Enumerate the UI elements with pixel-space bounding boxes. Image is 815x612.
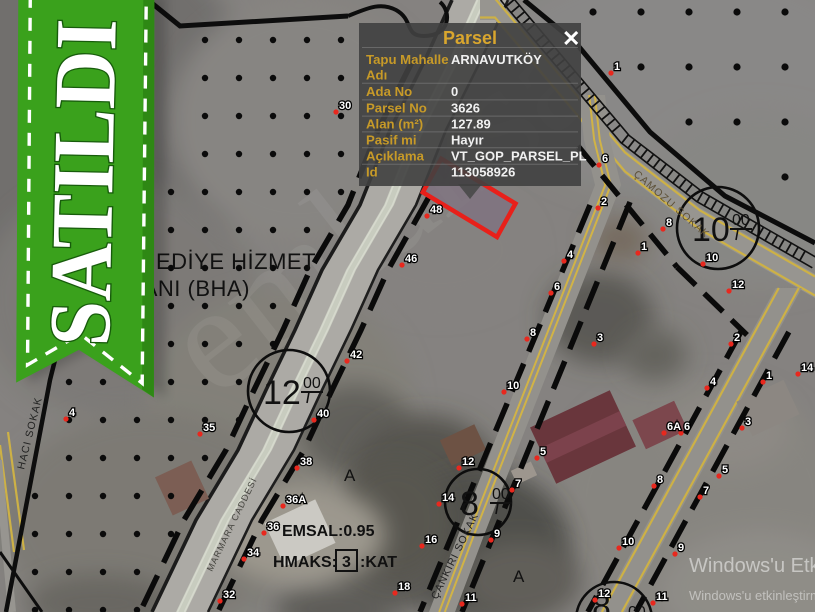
svg-text:11: 11 [656,591,668,603]
svg-text:2: 2 [601,196,607,208]
svg-text:5: 5 [722,464,728,476]
svg-text:48: 48 [430,204,442,216]
svg-text:HMAKS:: HMAKS: [273,554,337,571]
svg-text:Ada No: Ada No [366,84,412,99]
svg-text:11: 11 [465,592,477,604]
svg-text:6A: 6A [667,421,681,433]
svg-text:30: 30 [339,100,351,112]
svg-text:40: 40 [317,408,329,420]
svg-text:Parsel No: Parsel No [366,100,427,115]
svg-text:6: 6 [684,421,690,433]
svg-text:A: A [344,466,356,485]
svg-text:7: 7 [515,478,521,490]
svg-text:12: 12 [732,279,744,291]
svg-text:EMSAL:0.95: EMSAL:0.95 [282,523,375,540]
svg-text:4: 4 [710,376,717,388]
svg-text:A: A [513,567,525,586]
svg-text:3: 3 [745,416,751,428]
svg-text:9: 9 [678,542,684,554]
svg-text:18: 18 [398,581,410,593]
svg-text:00: 00 [303,375,321,392]
svg-text:Tapu Mahalle: Tapu Mahalle [366,52,449,67]
svg-text:34: 34 [247,547,260,559]
svg-text:0: 0 [451,84,458,99]
svg-text:8: 8 [657,474,663,486]
svg-text:4: 4 [69,407,76,419]
svg-text:3: 3 [597,332,603,344]
svg-text:Açıklama: Açıklama [366,148,425,163]
svg-text:ARNAVUTKÖY: ARNAVUTKÖY [451,52,542,67]
svg-text:38: 38 [300,456,312,468]
svg-text:12: 12 [263,374,301,412]
svg-text:8: 8 [530,327,536,339]
svg-text:16: 16 [425,534,437,546]
svg-text:12: 12 [598,588,610,600]
svg-text:1: 1 [614,61,620,73]
svg-text:Parsel: Parsel [443,28,497,48]
svg-text:10: 10 [706,252,718,264]
svg-text:Adı: Adı [366,68,387,83]
svg-text:6: 6 [602,153,608,165]
svg-text:00: 00 [492,486,510,503]
svg-text:46: 46 [405,253,417,265]
svg-text:1: 1 [641,241,647,253]
svg-text:10: 10 [622,536,634,548]
svg-text:36A: 36A [286,494,306,506]
svg-text:SATILDI: SATILDI [32,18,135,347]
svg-text:EDİYE HİZMET: EDİYE HİZMET [156,249,316,274]
svg-text:Windows'u etkinleştirm: Windows'u etkinleştirm [689,588,815,603]
svg-text:42: 42 [350,349,362,361]
svg-text:Windows'u Etkin: Windows'u Etkin [689,555,815,577]
svg-text:14: 14 [801,362,814,374]
svg-text:3: 3 [342,554,351,571]
svg-text:7: 7 [703,485,709,497]
svg-text:127.89: 127.89 [451,116,491,131]
svg-text:1: 1 [766,370,772,382]
svg-text:3626: 3626 [451,100,480,115]
svg-text:36: 36 [267,521,279,533]
svg-text:Pasif mi: Pasif mi [366,132,417,147]
svg-text:10: 10 [507,380,519,392]
svg-text:5: 5 [540,446,546,458]
svg-text::KAT: :KAT [360,554,397,571]
svg-text:12: 12 [462,456,474,468]
svg-text:6: 6 [554,281,560,293]
svg-text:2: 2 [734,332,740,344]
svg-text:8: 8 [666,217,672,229]
svg-text:9: 9 [494,528,500,540]
svg-text:4: 4 [567,249,574,261]
svg-text:00: 00 [732,212,750,229]
svg-text:Hayır: Hayır [451,132,484,147]
svg-text:00: 00 [628,604,646,612]
svg-text:113058926: 113058926 [451,165,515,180]
svg-text:Id: Id [366,165,378,180]
svg-text:35: 35 [203,422,215,434]
svg-text:Alan (m²): Alan (m²) [366,116,423,131]
svg-text:14: 14 [442,492,455,504]
svg-text:32: 32 [223,589,235,601]
svg-text:VT_GOP_PARSEL_PL: VT_GOP_PARSEL_PL [451,148,587,163]
